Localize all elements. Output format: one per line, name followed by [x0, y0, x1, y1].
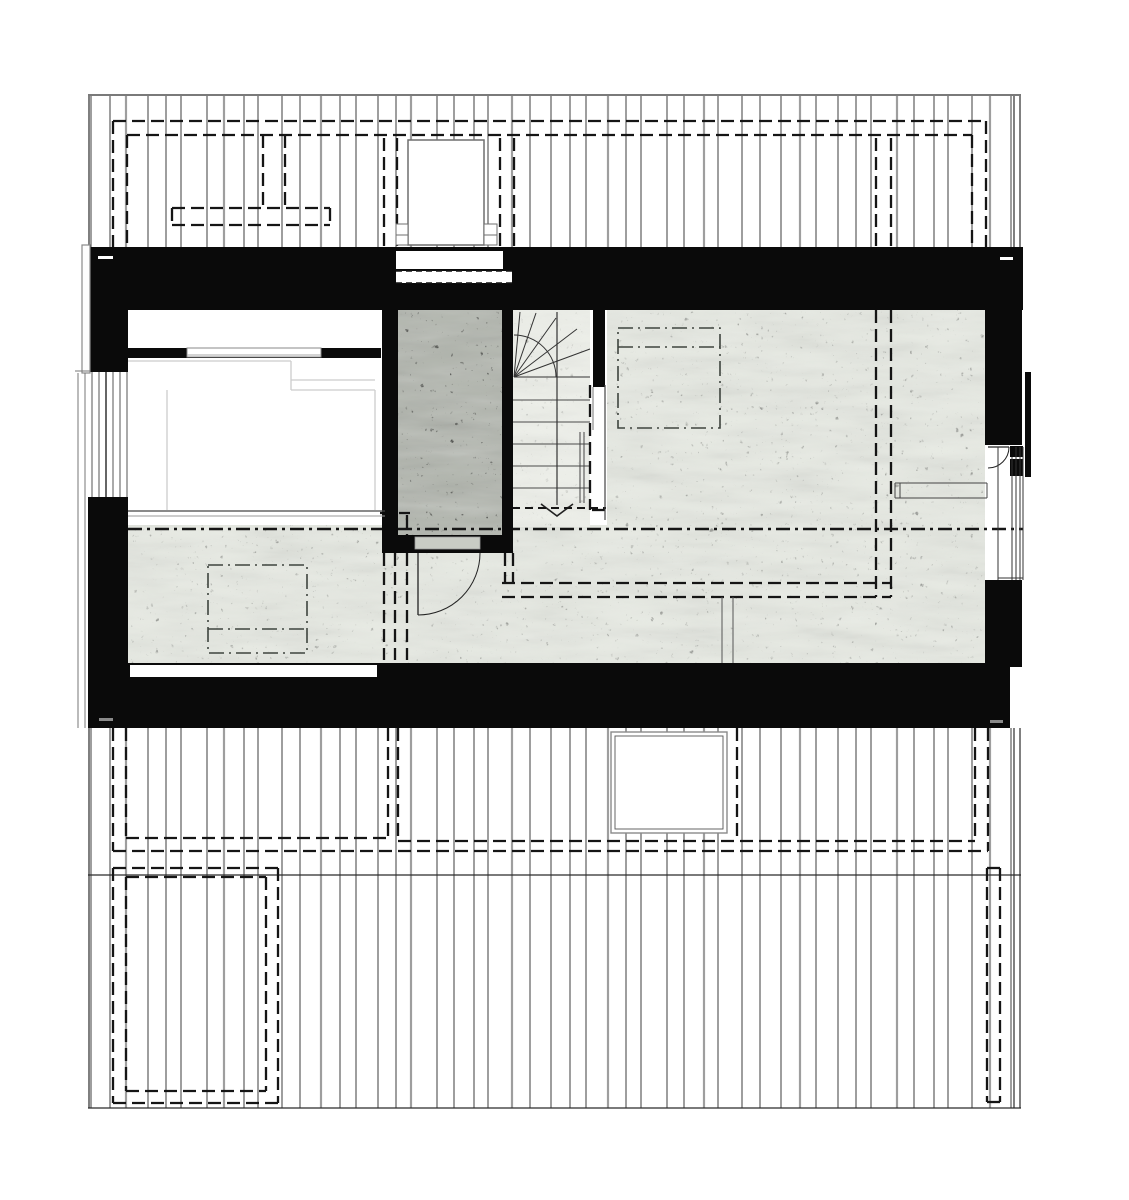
chimney-rooflight [396, 140, 497, 245]
floor-plan-stage [0, 0, 1129, 1200]
balcony-railing [1025, 372, 1031, 477]
roof-window-bottom [611, 732, 727, 833]
attic-floor-plan-drawing [0, 0, 1129, 1200]
